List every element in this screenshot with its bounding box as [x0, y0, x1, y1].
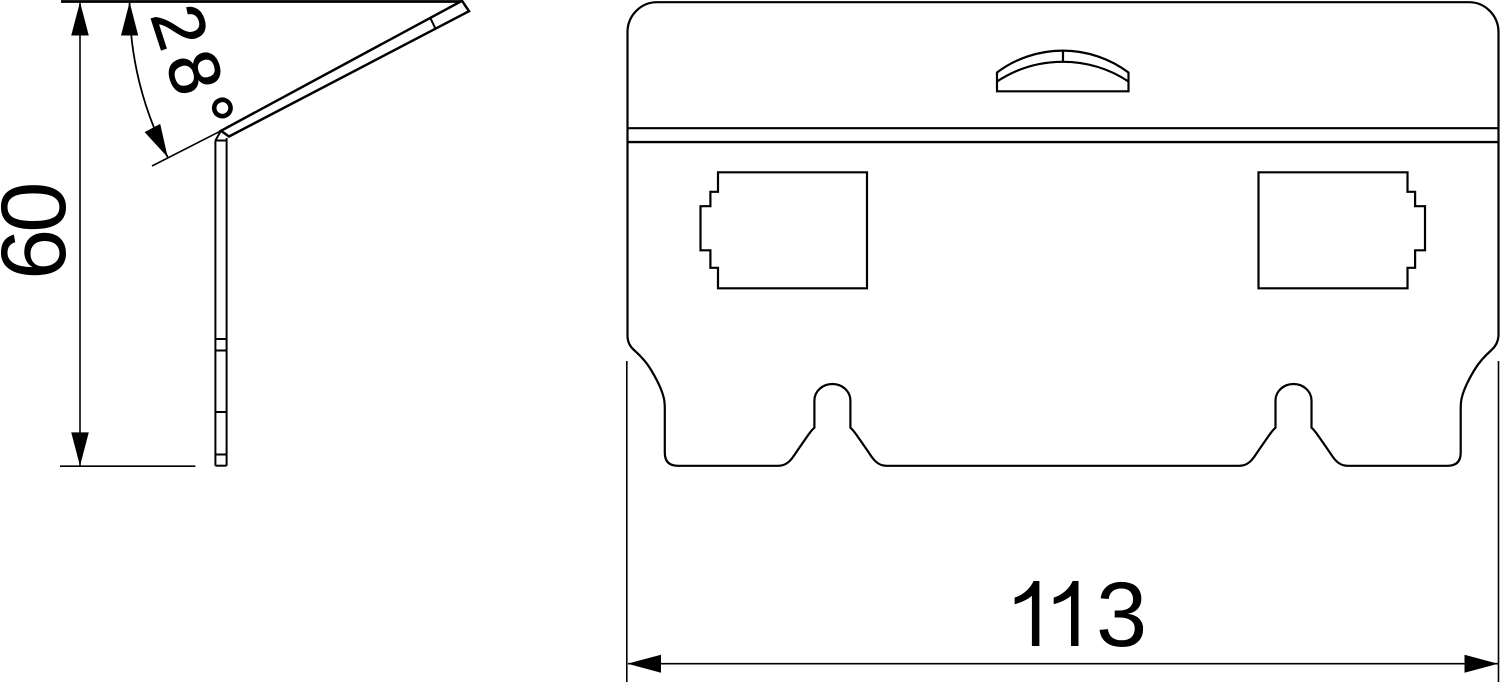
svg-text:60: 60 — [0, 185, 85, 280]
svg-text:3: 3 — [1096, 564, 1147, 666]
